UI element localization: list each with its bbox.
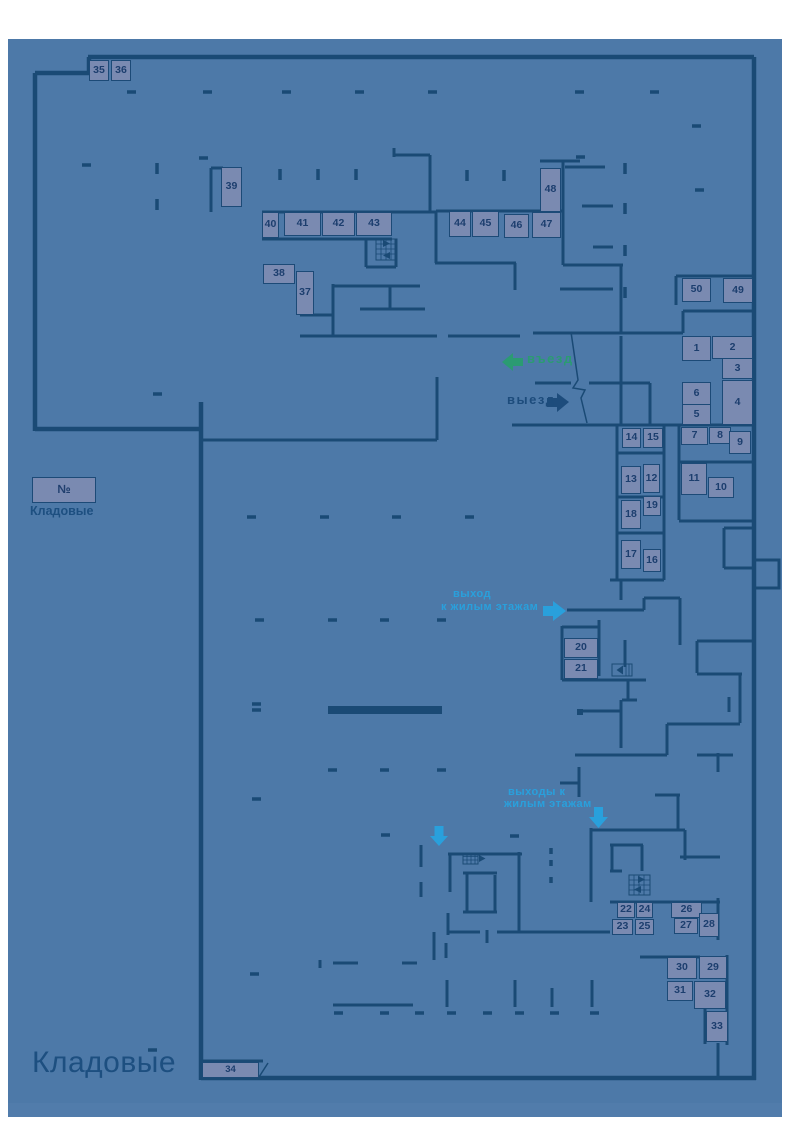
unit-box-28[interactable]: 28 (699, 913, 719, 937)
unit-box-23[interactable]: 23 (612, 919, 633, 935)
unit-box-12[interactable]: 12 (643, 464, 660, 493)
unit-box-40[interactable]: 40 (262, 212, 279, 238)
residential-exits-label-line2: жилым этажам (504, 798, 592, 810)
unit-box-10[interactable]: 10 (708, 477, 734, 498)
column-dot (577, 709, 583, 715)
unit-box-4[interactable]: 4 (722, 380, 753, 425)
unit-box-20[interactable]: 20 (564, 638, 598, 658)
unit-box-42[interactable]: 42 (322, 212, 355, 236)
unit-box-35[interactable]: 35 (89, 60, 109, 81)
exit-label: выезд (507, 392, 556, 407)
unit-box-5[interactable]: 5 (682, 404, 711, 425)
canvas-bottom-strip (8, 1103, 782, 1117)
unit-box-15[interactable]: 15 (643, 428, 663, 448)
unit-box-2[interactable]: 2 (712, 336, 753, 359)
unit-box-17[interactable]: 17 (621, 540, 641, 569)
unit-box-21[interactable]: 21 (564, 659, 598, 679)
unit-box-39[interactable]: 39 (221, 167, 242, 207)
unit-box-13[interactable]: 13 (621, 466, 641, 494)
unit-box-32[interactable]: 32 (694, 981, 726, 1009)
unit-box-14[interactable]: 14 (622, 428, 641, 448)
unit-box-41[interactable]: 41 (284, 212, 321, 236)
unit-box-24[interactable]: 24 (636, 902, 653, 918)
unit-box-33[interactable]: 33 (706, 1011, 728, 1042)
unit-box-7[interactable]: 7 (681, 427, 708, 445)
unit-box-18[interactable]: 18 (621, 500, 641, 529)
unit-box-6[interactable]: 6 (682, 382, 711, 405)
unit-box-16[interactable]: 16 (643, 549, 661, 572)
unit-box-3[interactable]: 3 (722, 358, 753, 379)
unit-box-9[interactable]: 9 (729, 431, 751, 454)
page-title: Кладовые (32, 1046, 176, 1080)
legend-number-box: № (32, 477, 96, 503)
unit-box-30[interactable]: 30 (667, 957, 697, 979)
unit-box-29[interactable]: 29 (699, 956, 727, 979)
unit-box-36[interactable]: 36 (111, 60, 131, 81)
entrance-label: въезд (527, 351, 574, 366)
unit-box-37[interactable]: 37 (296, 271, 314, 315)
unit-box-45[interactable]: 45 (472, 211, 499, 237)
unit-box-11[interactable]: 11 (681, 463, 707, 495)
unit-box-47[interactable]: 47 (532, 212, 561, 238)
unit-box-19[interactable]: 19 (643, 496, 661, 516)
unit-box-8[interactable]: 8 (709, 427, 731, 444)
unit-box-31[interactable]: 31 (667, 981, 693, 1001)
unit-box-44[interactable]: 44 (449, 211, 471, 237)
unit-box-1[interactable]: 1 (682, 336, 711, 361)
unit-box-49[interactable]: 49 (723, 278, 753, 303)
residential-exit-label-line1: выход (453, 588, 491, 600)
unit-box-34[interactable]: 34 (202, 1062, 259, 1078)
unit-box-38[interactable]: 38 (263, 264, 295, 284)
unit-box-27[interactable]: 27 (674, 918, 698, 934)
unit-box-25[interactable]: 25 (635, 919, 654, 935)
residential-exit-label-line2: к жилым этажам (441, 601, 538, 613)
lane-divider-bar (328, 706, 442, 714)
unit-box-43[interactable]: 43 (356, 212, 392, 236)
plan-canvas (8, 39, 782, 1117)
legend-caption: Кладовые (30, 504, 93, 518)
unit-box-46[interactable]: 46 (504, 214, 529, 238)
unit-box-48[interactable]: 48 (540, 168, 561, 212)
unit-box-50[interactable]: 50 (682, 278, 711, 302)
unit-box-26[interactable]: 26 (671, 902, 702, 918)
unit-box-22[interactable]: 22 (617, 902, 635, 918)
residential-exits-label-line1: выходы к (508, 786, 566, 798)
